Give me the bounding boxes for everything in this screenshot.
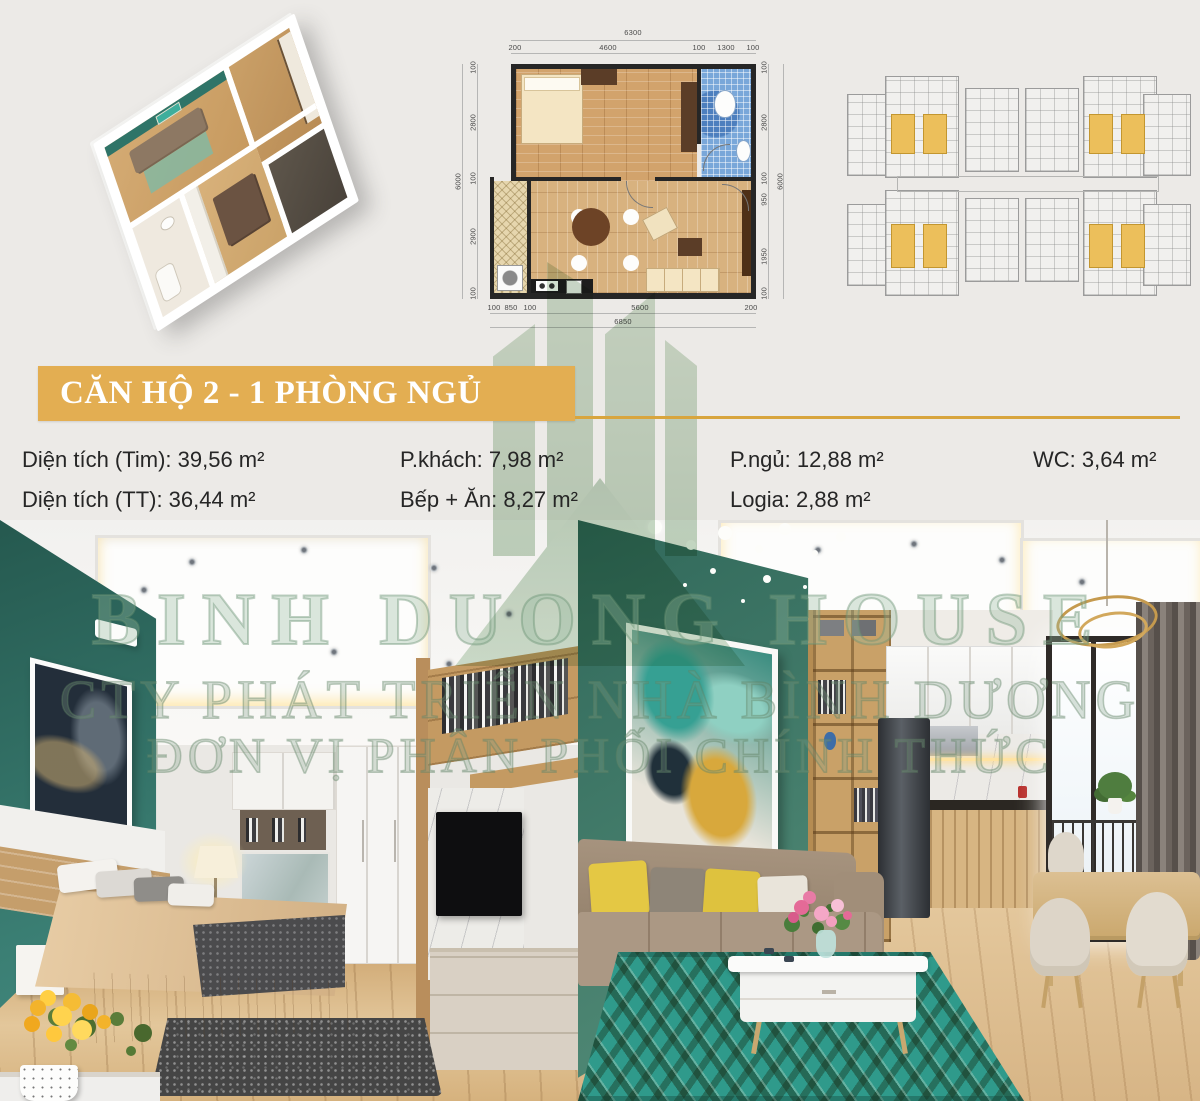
dim-label: 200 — [729, 303, 773, 312]
dining-chair — [1048, 832, 1084, 876]
spotlight-icon — [910, 540, 918, 548]
coffee-table-top — [728, 956, 928, 972]
dim-label: 100 — [508, 303, 552, 312]
spotlight-icon — [300, 546, 308, 554]
spec-p-ngu: P.ngủ: 12,88 m² — [730, 447, 884, 473]
dim-label: 5600 — [618, 303, 662, 312]
plan-sink — [736, 140, 751, 162]
spec-dien-tich-tim: Diện tích (Tim): 39,56 m² — [22, 447, 264, 473]
plan-wall — [490, 177, 494, 299]
chandelier-wire — [1106, 520, 1108, 606]
keyplan-highlight-unit — [923, 114, 947, 154]
ceramic-vase — [824, 732, 836, 750]
plan-kitchen-sink — [566, 280, 582, 294]
spec-p-khach: P.khách: 7,98 m² — [400, 447, 563, 473]
branch-chandelier — [648, 520, 662, 534]
plan-stove — [536, 281, 558, 291]
yellow-roses — [30, 1000, 46, 1016]
living-wall-art — [626, 623, 778, 880]
yellow-cushion — [588, 860, 650, 918]
keyplan-highlight-unit — [891, 224, 915, 268]
dim-label: 6850 — [601, 317, 645, 326]
dim-line — [511, 53, 756, 54]
spotlight-icon — [140, 586, 148, 594]
spec-wc: WC: 3,64 m² — [1033, 447, 1156, 473]
plan-wall — [697, 64, 701, 144]
keyplan-wing — [1143, 94, 1191, 176]
under-cabinet-light — [918, 758, 1048, 761]
interior-photos — [0, 520, 1200, 1101]
keyplan-wing — [1025, 198, 1079, 282]
coffee-table-drawer — [822, 990, 836, 994]
floor-plan-2d: 6300 200 4600 100 1300 100 6000 100 2800… — [450, 22, 795, 347]
plan-wall — [511, 64, 756, 69]
dim-label: 2800 — [760, 101, 769, 145]
keyplan-wing — [965, 88, 1019, 172]
spotlight-icon — [330, 648, 338, 656]
plan-sofa — [646, 268, 720, 292]
keyplan-highlight-unit — [1121, 114, 1145, 154]
photo-bedroom — [0, 520, 578, 1101]
coffee-table-body — [740, 972, 916, 1022]
plan-toilet — [714, 90, 736, 118]
dim-label: 950 — [760, 178, 769, 222]
television — [436, 812, 522, 916]
pink-bouquet — [794, 900, 809, 915]
plan-wall — [490, 293, 756, 299]
dining-chair — [1030, 898, 1090, 976]
dim-label: 100 — [469, 157, 478, 201]
isometric-3d-view — [48, 2, 403, 352]
page-title: CĂN HỘ 2 - 1 PHÒNG NGỦ — [38, 375, 482, 412]
keyplan-wing — [1143, 204, 1191, 286]
bouquet-leaves — [784, 916, 800, 932]
keyplan-highlight-unit — [891, 114, 915, 154]
dim-line — [511, 40, 756, 41]
plan-hall-closet — [681, 82, 697, 152]
plant-vase — [1108, 798, 1122, 814]
dim-line — [490, 327, 756, 328]
wardrobe-handle — [394, 820, 396, 862]
keyplan-highlight-unit — [1089, 224, 1113, 268]
flower-pot — [20, 1065, 78, 1101]
dim-label: 100 — [760, 46, 769, 90]
balcony-plant — [1098, 772, 1132, 800]
kitchen-counter — [930, 800, 1052, 810]
tea-cup — [764, 948, 774, 954]
wardrobe-handle — [362, 820, 364, 862]
glass-vase — [816, 930, 836, 958]
spotlight-icon — [1078, 578, 1086, 586]
plan-washing-machine — [497, 265, 523, 291]
tea-cup — [784, 956, 794, 962]
plan-wall — [527, 181, 531, 293]
building-key-plan — [845, 58, 1193, 300]
apartment-flyer: 6300 200 4600 100 1300 100 6000 100 2800… — [0, 0, 1200, 1101]
flower-leaves — [48, 1008, 66, 1026]
dim-line — [490, 313, 756, 314]
range-hood — [930, 726, 978, 756]
keyplan-highlight-unit — [1089, 114, 1113, 154]
plan-wardrobe — [581, 69, 617, 85]
spotlight-icon — [430, 564, 438, 572]
storage-boxes — [820, 620, 844, 636]
plan-dining-table — [572, 208, 610, 246]
bed-pillow — [168, 883, 215, 907]
keyplan-highlight-unit — [923, 224, 947, 268]
spec-logia: Logia: 2,88 m² — [730, 487, 871, 513]
spotlight-icon — [505, 610, 513, 618]
photo-living-room — [578, 520, 1200, 1101]
books-row — [854, 788, 880, 822]
refrigerator — [878, 718, 930, 918]
spec-bep-an: Bếp + Ăn: 8,27 m² — [400, 487, 578, 513]
books-row — [818, 680, 846, 714]
plan-wall — [511, 64, 516, 181]
plan-wall — [751, 64, 756, 299]
tv-lower-cabinet — [430, 948, 578, 1070]
desk-upper-cabinet — [232, 752, 336, 810]
keyplan-highlight-unit — [1121, 224, 1145, 268]
spotlight-icon — [188, 558, 196, 566]
plan-coffee-table — [678, 238, 702, 256]
spotlight-icon — [814, 546, 822, 554]
dim-label: 2800 — [469, 101, 478, 145]
dim-label: 2900 — [469, 215, 478, 259]
plan-bed-pillow — [524, 77, 580, 91]
title-banner: CĂN HỘ 2 - 1 PHÒNG NGỦ — [38, 366, 575, 421]
dim-label: 4600 — [586, 43, 630, 52]
desk-shelf-niche — [240, 810, 326, 850]
dim-label: 6000 — [454, 160, 463, 204]
dim-label: 200 — [493, 43, 537, 52]
isometric-apartment-shell — [93, 13, 359, 331]
spotlight-icon — [998, 556, 1006, 564]
table-lamp — [194, 846, 238, 878]
red-kettle — [1018, 786, 1027, 798]
dining-chair — [1126, 892, 1188, 976]
keyplan-corridor — [897, 176, 1159, 192]
keyplan-wing — [965, 198, 1019, 282]
dim-label: 6300 — [611, 28, 655, 37]
spec-dien-tich-tt: Diện tích (TT): 36,44 m² — [22, 487, 256, 513]
dim-label: 100 — [469, 46, 478, 90]
keyplan-wing — [1025, 88, 1079, 172]
plan-wall — [655, 177, 756, 181]
divider-line — [575, 416, 1180, 419]
dim-label: 6000 — [776, 160, 785, 204]
